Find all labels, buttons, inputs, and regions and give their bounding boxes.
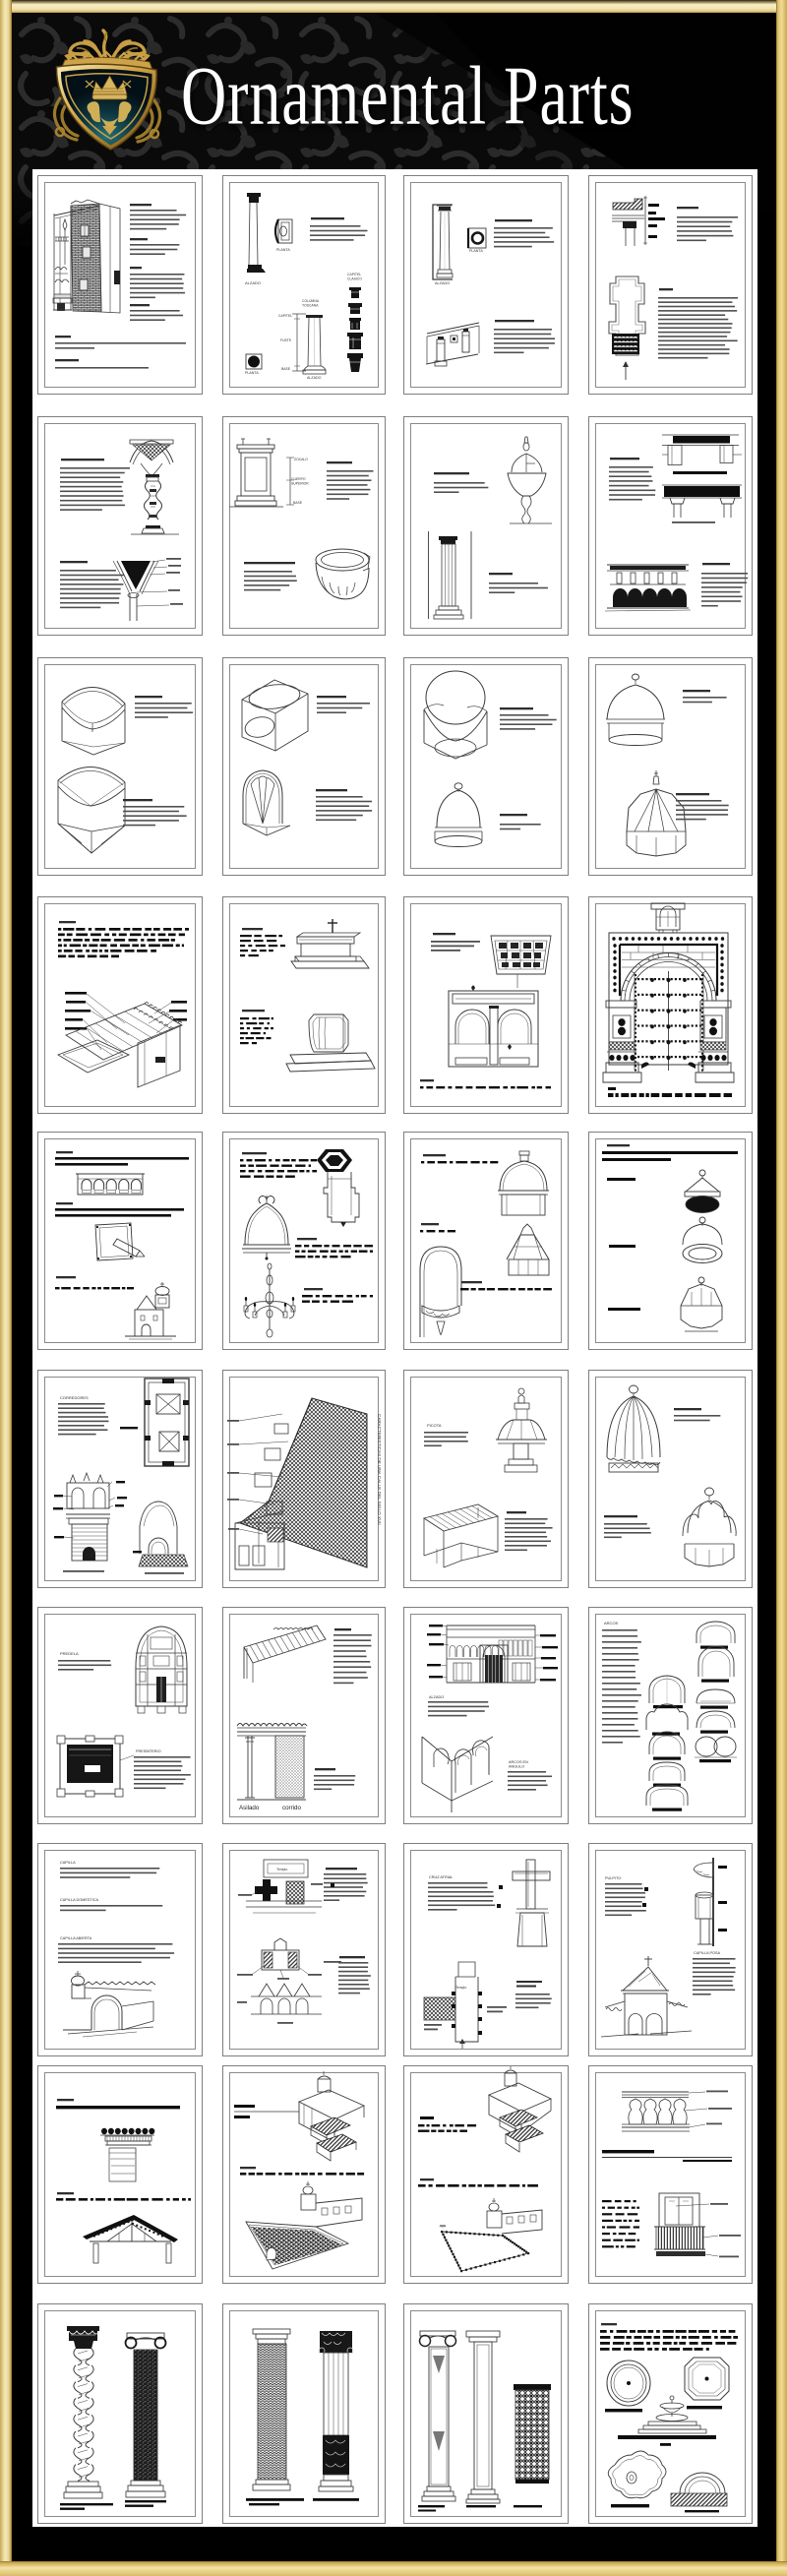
svg-text:ARCOS: ARCOS [604, 1621, 619, 1625]
svg-text:COLUMNA: COLUMNA [302, 299, 320, 303]
svg-text:ALZADO: ALZADO [429, 1695, 444, 1699]
svg-text:PREDELA: PREDELA [60, 1651, 79, 1656]
svg-text:CAPILLA DOMESTICA: CAPILLA DOMESTICA [60, 1898, 99, 1902]
svg-text:CLASICO: CLASICO [347, 277, 362, 281]
svg-text:Asilado: Asilado [239, 1805, 260, 1811]
svg-text:CAPITEL: CAPITEL [278, 314, 292, 318]
svg-text:CARACTERISTICAS DE UNA CALLE D: CARACTERISTICAS DE UNA CALLE DEL SIGLO X… [377, 1414, 382, 1525]
svg-text:BASE: BASE [281, 367, 291, 371]
svg-text:CORREDORES: CORREDORES [60, 1395, 89, 1400]
svg-text:CAPILLA: CAPILLA [60, 1861, 76, 1865]
svg-text:CAPITEL: CAPITEL [347, 273, 361, 276]
svg-text:CUERPO: CUERPO [291, 477, 306, 481]
svg-text:ZOCALO: ZOCALO [294, 458, 308, 461]
svg-text:SUPERIOR: SUPERIOR [291, 482, 309, 486]
svg-text:BASE: BASE [293, 501, 303, 505]
svg-text:PLANTA: PLANTA [469, 249, 483, 253]
svg-text:corrido: corrido [282, 1805, 301, 1811]
svg-text:CAPILLA ABIERTA: CAPILLA ABIERTA [60, 1936, 92, 1940]
svg-text:CRUZ ATRIAL: CRUZ ATRIAL [429, 1875, 453, 1879]
svg-text:FUSTE: FUSTE [280, 338, 292, 342]
svg-text:PLANTA: PLANTA [245, 371, 259, 375]
svg-text:TOSCANA: TOSCANA [302, 304, 319, 308]
svg-text:ALZADO: ALZADO [245, 280, 261, 285]
svg-text:Templo: Templo [455, 1986, 466, 1990]
svg-text:PLANTA: PLANTA [276, 248, 290, 252]
svg-text:ALZADO: ALZADO [307, 376, 322, 380]
svg-text:ALZADO: ALZADO [435, 281, 450, 285]
svg-text:PULPITO: PULPITO [605, 1876, 621, 1880]
svg-text:CAPILLA POSA: CAPILLA POSA [694, 1951, 720, 1955]
svg-text:PICOTA: PICOTA [427, 1423, 442, 1428]
svg-text:ANGULO: ANGULO [509, 1765, 524, 1769]
svg-text:PRESBITERIO: PRESBITERIO [136, 1749, 161, 1753]
svg-text:Templo: Templo [276, 1868, 287, 1871]
svg-text:ARCOS EN: ARCOS EN [509, 1760, 528, 1764]
